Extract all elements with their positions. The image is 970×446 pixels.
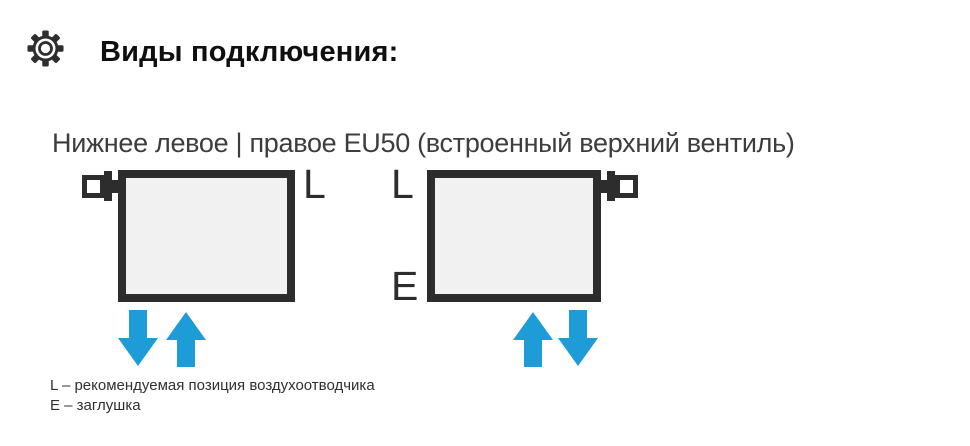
air-vent-label-left-diagram: L bbox=[303, 164, 326, 205]
infographic-connection-types: Виды подключения: Нижнее левое | правое … bbox=[0, 0, 970, 446]
valve-fitting-left-stub bbox=[111, 180, 118, 193]
legend-line-air-vent: L – рекомендуемая позиция воздухоотводчи… bbox=[50, 376, 375, 396]
arrow-down-icon bbox=[558, 310, 598, 366]
arrow-down-icon bbox=[118, 310, 158, 366]
arrow-up-icon bbox=[166, 312, 206, 367]
flow-arrows-left bbox=[116, 310, 206, 368]
valve-fitting-left-cap bbox=[82, 175, 105, 198]
gear-icon bbox=[27, 29, 64, 68]
flow-arrows-right bbox=[511, 310, 601, 368]
legend-line-plug: E – заглушка bbox=[50, 396, 375, 416]
radiator-left-diagram bbox=[118, 170, 295, 302]
legend: L – рекомендуемая позиция воздухоотводчи… bbox=[50, 376, 375, 416]
connection-type-subtitle: Нижнее левое | правое EU50 (встроенный в… bbox=[52, 129, 795, 159]
valve-fitting-right-bar bbox=[607, 171, 615, 201]
arrow-up-icon bbox=[513, 312, 553, 367]
valve-fitting-right-cap bbox=[615, 175, 638, 198]
page-title: Виды подключения: bbox=[100, 37, 399, 67]
plug-label-right-diagram: E bbox=[391, 266, 418, 307]
air-vent-label-right-diagram: L bbox=[391, 164, 414, 205]
radiator-right-diagram bbox=[427, 170, 601, 302]
